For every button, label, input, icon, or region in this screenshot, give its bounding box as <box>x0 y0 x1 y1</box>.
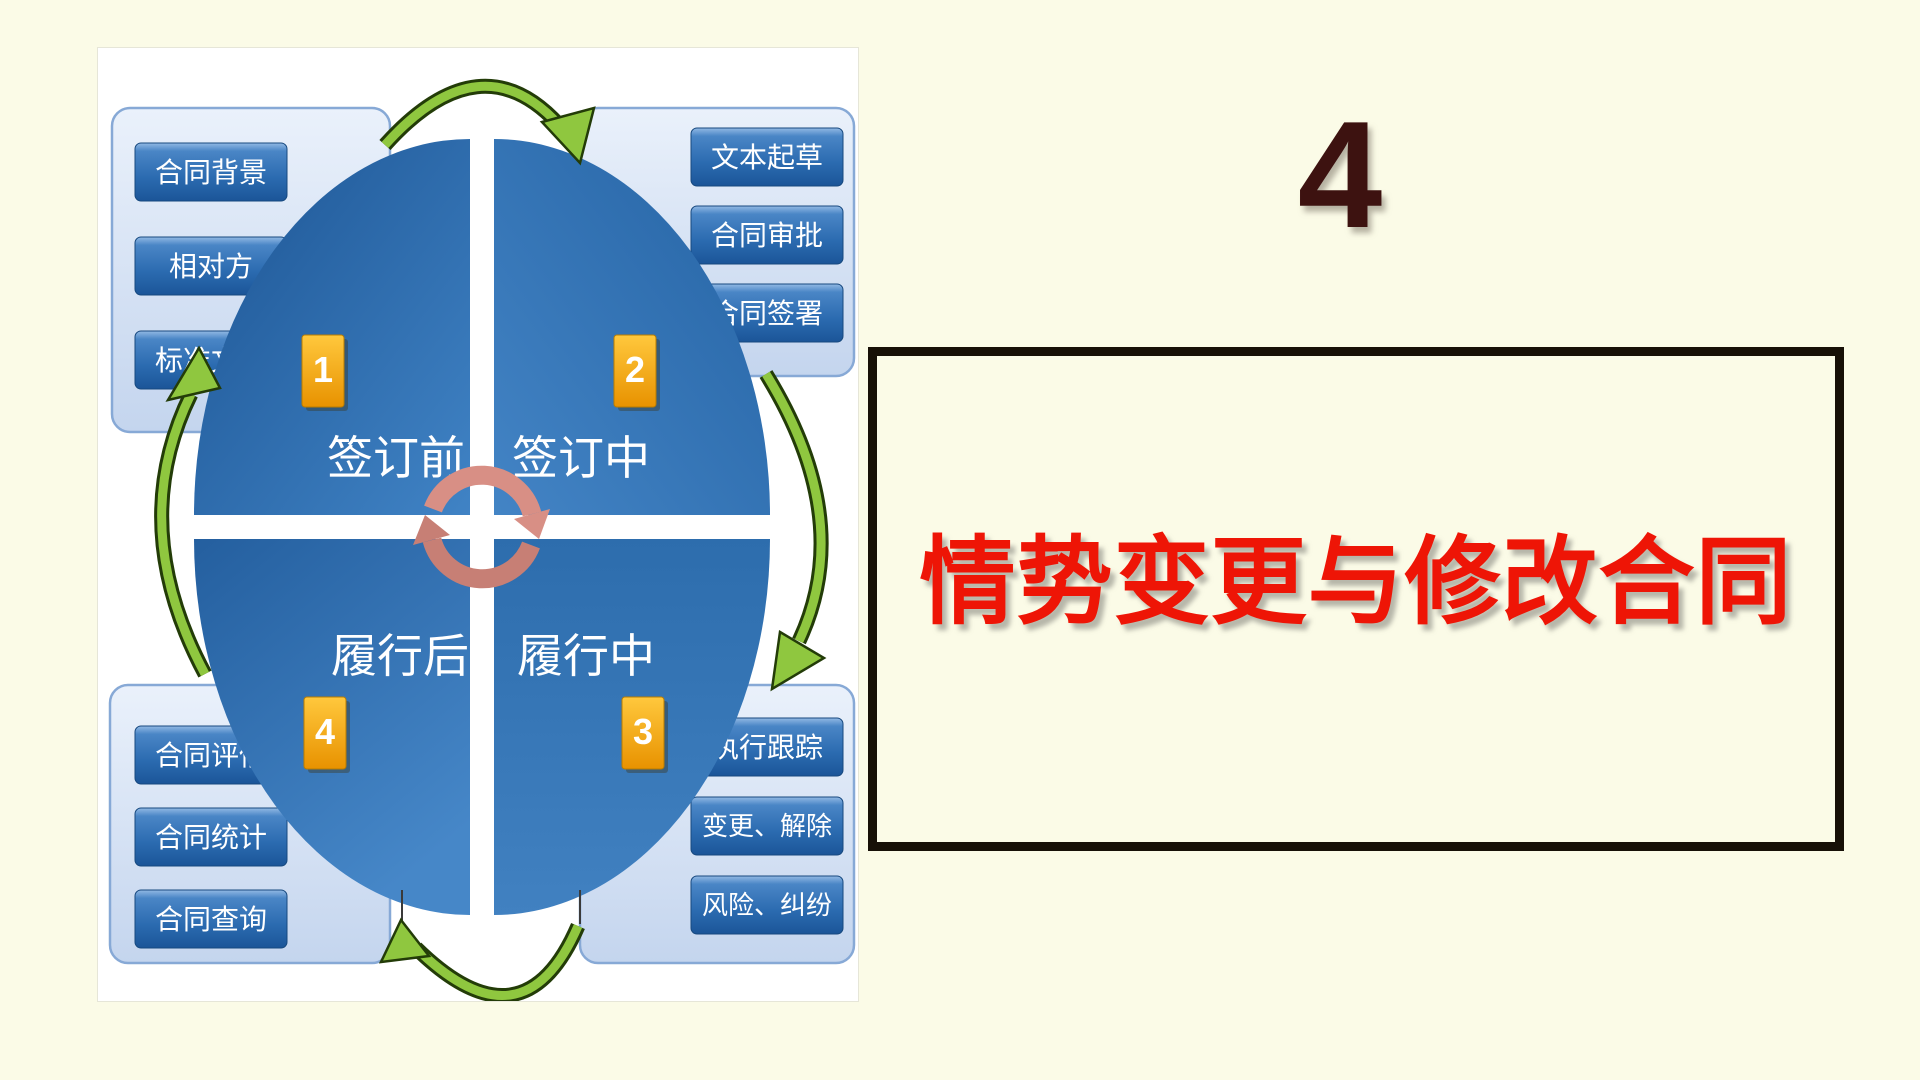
diagram-button-draft-text: 文本起草 <box>691 128 843 186</box>
quadrant-label-post-performance: 履行后 <box>331 630 469 682</box>
contract-lifecycle-svg: 合同背景 相对方 标准文本 文本起草 合 <box>98 48 858 1001</box>
cycle-arrows-icon <box>413 475 550 579</box>
badge-3: 3 <box>622 697 668 773</box>
button-label: 风险、纠纷 <box>702 890 832 920</box>
section-number: 4 <box>1255 96 1425 256</box>
arrow-bottom-icon <box>381 920 578 996</box>
badge-4: 4 <box>304 697 350 773</box>
badge-2: 2 <box>614 335 660 411</box>
diagram-button-contract-query: 合同查询 <box>135 890 287 948</box>
button-label: 合同查询 <box>155 904 267 935</box>
quadrant-label-signing: 签订中 <box>512 432 650 484</box>
button-label: 合同统计 <box>155 822 267 853</box>
button-label: 文本起草 <box>711 142 823 173</box>
badge-number: 1 <box>313 349 333 390</box>
quadrant-label-performing: 履行中 <box>517 630 655 682</box>
diagram-button-contract-background: 合同背景 <box>135 143 287 201</box>
badge-number: 3 <box>633 711 653 752</box>
diagram-button-contract-approval: 合同审批 <box>691 206 843 264</box>
badge-1: 1 <box>302 335 348 411</box>
arrow-right-icon <box>766 374 824 689</box>
badge-number: 4 <box>315 711 335 752</box>
button-label: 合同审批 <box>711 220 823 251</box>
diagram-button-contract-statistics: 合同统计 <box>135 808 287 866</box>
badge-number: 2 <box>625 349 645 390</box>
button-label: 合同背景 <box>155 157 267 188</box>
button-label: 相对方 <box>169 251 253 282</box>
title-box: 情势变更与修改合同 <box>868 347 1844 851</box>
button-label: 变更、解除 <box>702 811 832 841</box>
diagram-button-risk-dispute: 风险、纠纷 <box>691 876 843 934</box>
slide: 合同背景 相对方 标准文本 文本起草 合 <box>0 0 1920 1080</box>
quadrant-label-pre-signing: 签订前 <box>327 432 465 484</box>
contract-lifecycle-diagram: 合同背景 相对方 标准文本 文本起草 合 <box>98 48 858 1001</box>
slide-title: 情势变更与修改合同 <box>920 504 1793 643</box>
diagram-button-change-termination: 变更、解除 <box>691 797 843 855</box>
